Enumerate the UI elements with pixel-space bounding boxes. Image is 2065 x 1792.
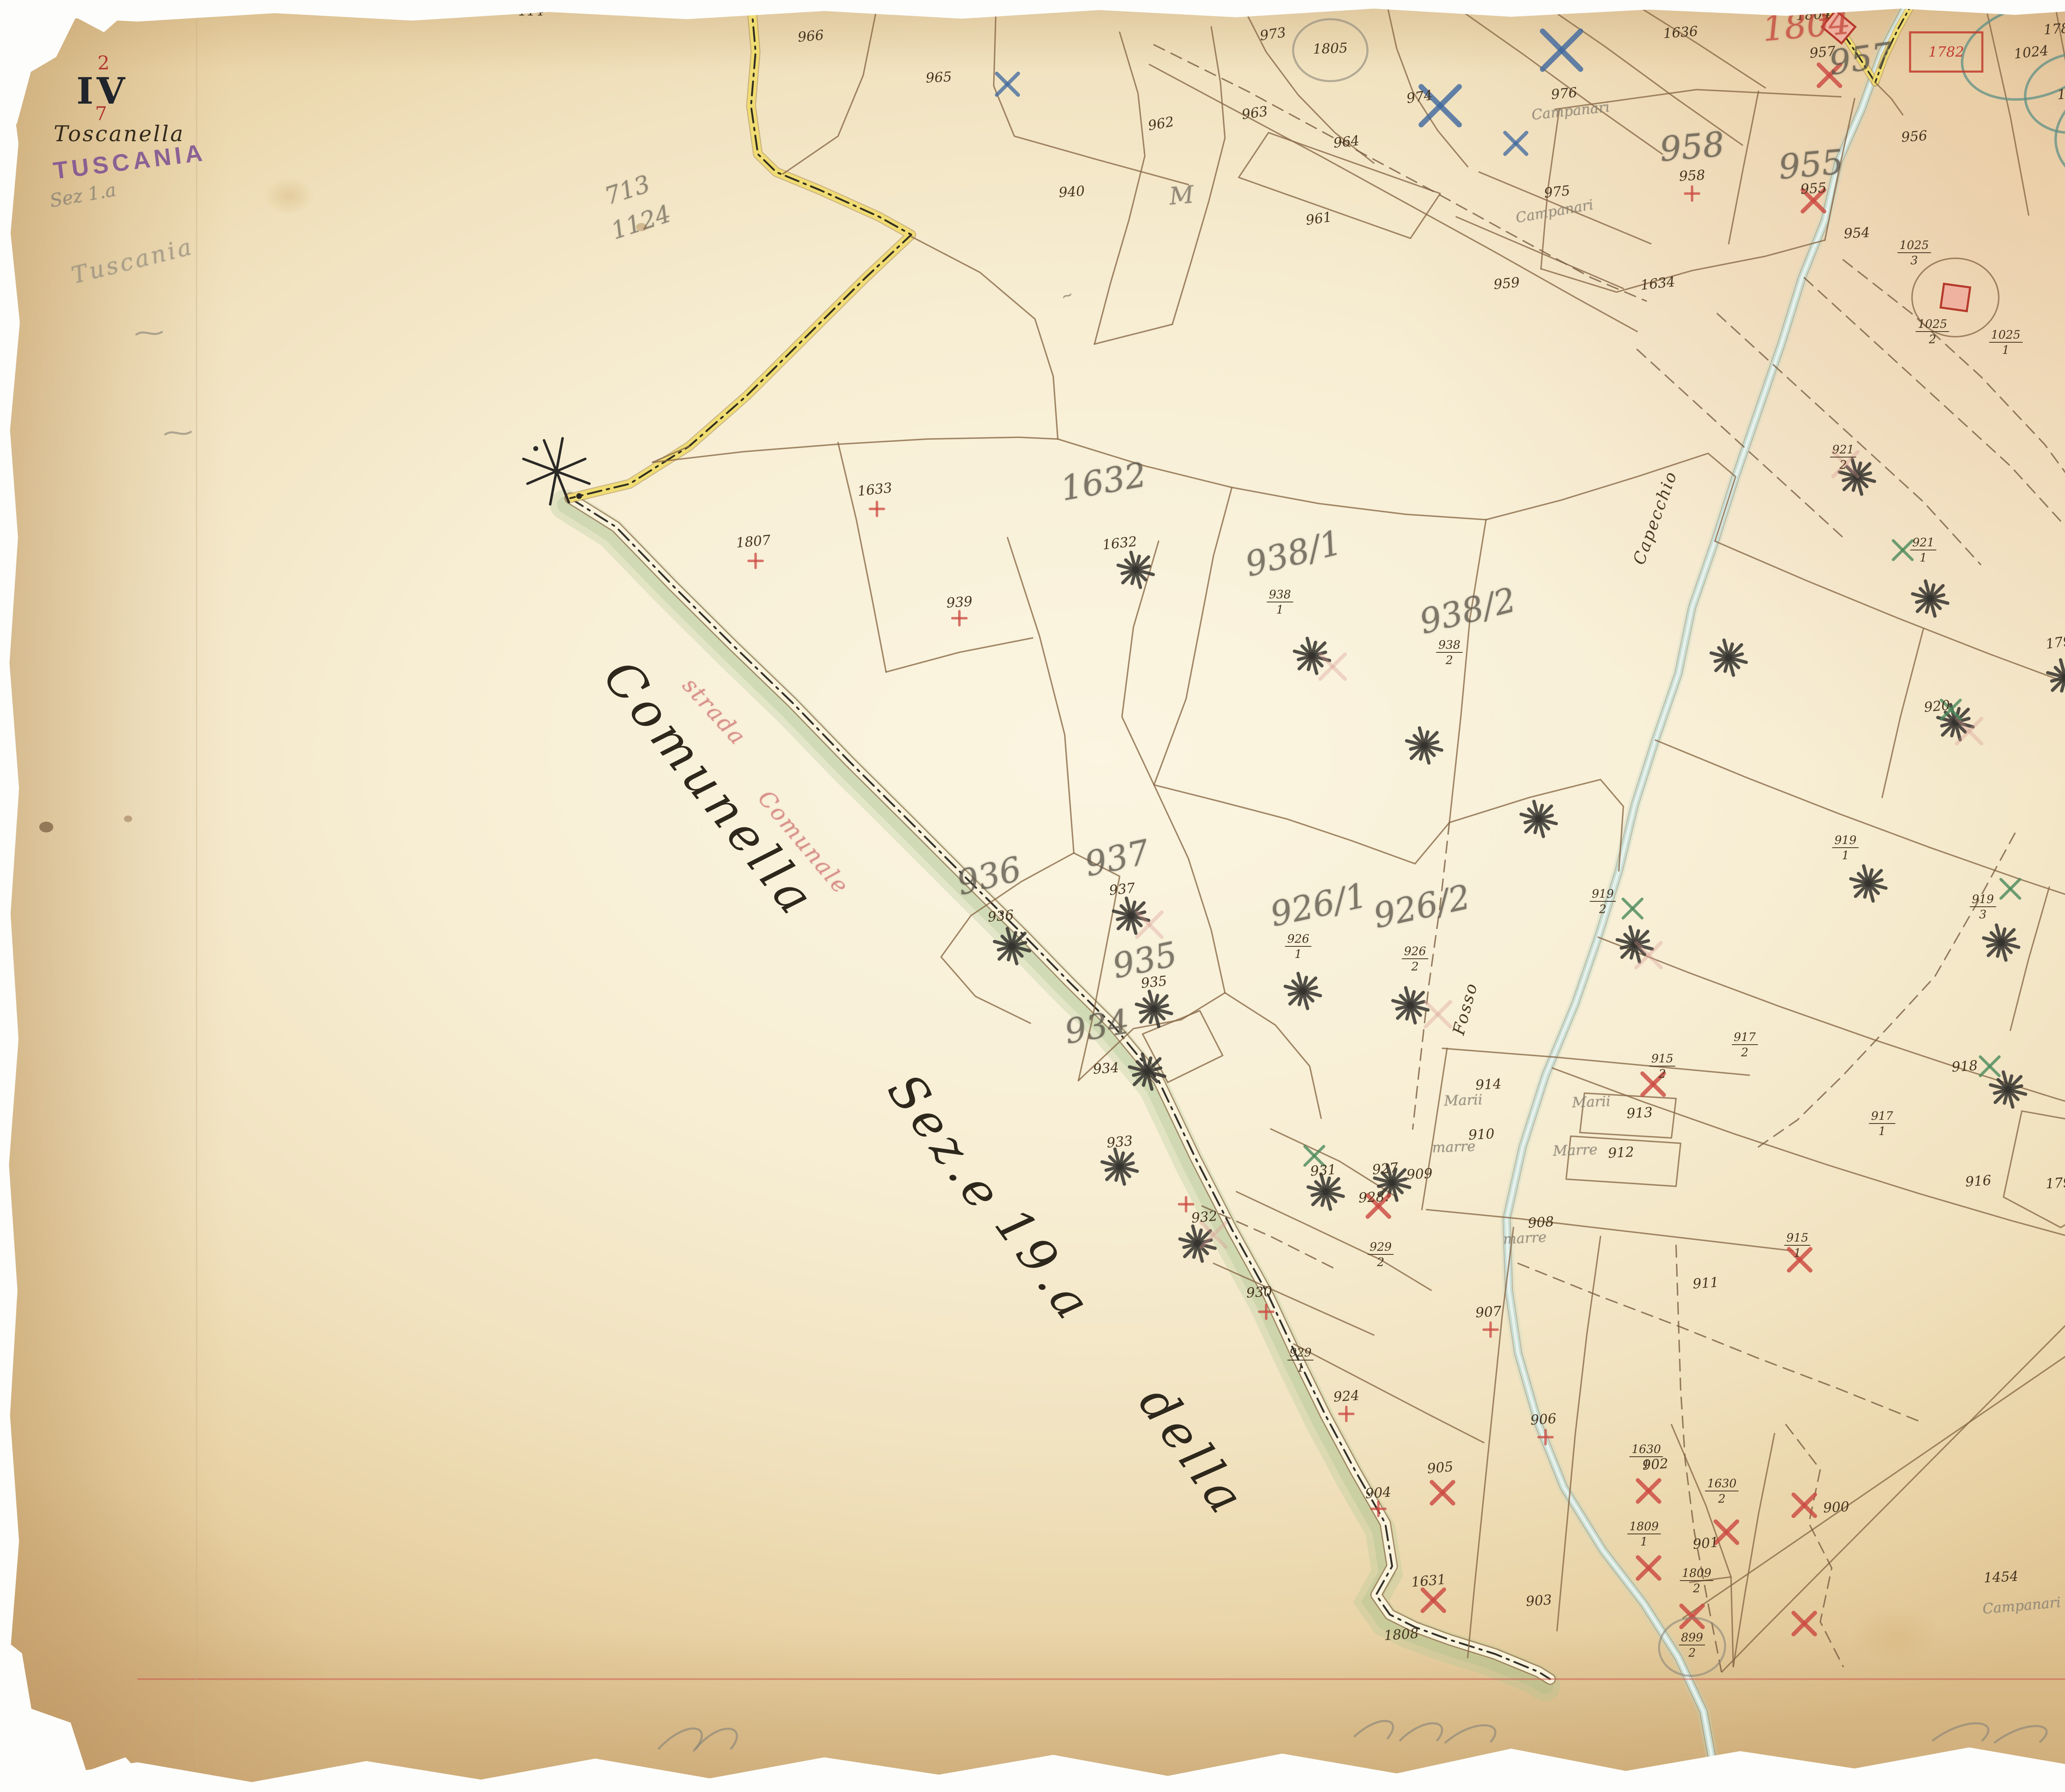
parcel-boundary [2056, 11, 2065, 206]
scanned-map-sheet: 9669659731805974976962963964961975959163… [0, 0, 2065, 1792]
road-surface [570, 498, 1550, 1679]
parcel-boundary [1640, 7, 1766, 88]
tree-symbol [1285, 974, 1320, 1009]
dashed-path [1843, 260, 2065, 914]
tree-symbol [1913, 581, 1948, 616]
parcel-boundary [1987, 14, 2029, 215]
tree-symbol [1137, 991, 1172, 1026]
dashed-path [1717, 314, 1981, 565]
parcel-boundary [2003, 1111, 2065, 1228]
tree-symbol [1407, 728, 1442, 763]
dashed-path [1759, 833, 2015, 1147]
tree-symbol [1308, 1174, 1343, 1209]
parcel-boundary [1213, 1263, 1374, 1335]
tree-symbol [1113, 898, 1149, 933]
parcel-boundary [2010, 887, 2049, 1030]
parcel-boundary [1552, 1068, 2065, 1269]
parcel-boundary [1449, 520, 1486, 823]
pencil-circle-annotation [1293, 19, 1367, 81]
dashed-path [1637, 349, 1843, 538]
parcel-boundary [1094, 32, 1145, 344]
stream-green-verge [1507, 0, 1910, 1774]
parcel-boundary [1598, 937, 2065, 1151]
pencil-flourish [1355, 1721, 1393, 1738]
dashed-path [1518, 1263, 1919, 1421]
dashed-path [1154, 45, 1646, 301]
road-green-verge [565, 505, 1545, 1686]
parcel-boundary [1715, 541, 2065, 721]
parcel-boundary [1825, 99, 1855, 240]
tree-symbol [1991, 1072, 2026, 1107]
parcel-boundary [1154, 488, 1232, 785]
parcel-boundary [911, 237, 1058, 439]
yellow-road-centerline [570, 0, 911, 498]
dashed-path [1786, 1425, 1843, 1666]
teal-circle-annotation [1951, 0, 2065, 114]
tree-symbol [1118, 552, 1153, 588]
parcel-boundary [1875, 83, 1903, 115]
parcel-boundary [1225, 993, 1321, 1118]
road-casing [570, 498, 1550, 1679]
parcel-boundary [1486, 453, 1735, 541]
yellow-road-casing [570, 0, 911, 498]
parcel-boundary [1239, 133, 1440, 238]
road-centerline [570, 498, 1550, 1679]
parcel-boundary [1422, 1048, 1447, 1210]
parcel-boundary [1566, 1136, 1680, 1187]
pencil-squiggle [136, 332, 162, 334]
pencil-flourish [1933, 1723, 1988, 1740]
tree-symbol [1393, 988, 1428, 1023]
tree-symbol [1984, 925, 2019, 960]
parcel-boundary [1882, 629, 1923, 797]
parcel-boundary [1243, 7, 1374, 163]
parcel-boundary [1548, 7, 1742, 145]
parcel-boundary [1154, 785, 1449, 864]
parcel-boundary [1729, 91, 1759, 244]
pencil-flourish [1995, 1726, 2047, 1742]
parcel-boundary [1555, 90, 1841, 109]
yellow-road-surface [570, 0, 911, 498]
parcel-boundary [1541, 109, 1559, 269]
parcel-boundary [1690, 1577, 1731, 1582]
parcel-boundary [1541, 240, 1825, 292]
parcel-boundary [994, 7, 1188, 185]
stream-bank [1507, 0, 1910, 1774]
pencil-flourish [1445, 1725, 1495, 1742]
dashed-path [1413, 823, 1450, 1129]
stream-water-core [1507, 0, 1910, 1774]
parcel-boundary [1058, 439, 1486, 519]
parcel-boundary [1733, 1434, 1775, 1666]
parcel-boundary [1479, 172, 1651, 244]
building-symbol [1941, 284, 1970, 311]
parcel-boundary [1173, 27, 1225, 324]
parcel-boundary [1007, 538, 1074, 853]
tree-symbol [1851, 866, 1886, 901]
map-linework [0, 0, 2065, 1792]
parcel-boundary [783, 7, 877, 174]
stream-water [1507, 0, 1910, 1774]
parcel-boundary [886, 638, 1033, 672]
tree-symbol [1521, 801, 1556, 837]
parcel-boundary [838, 443, 886, 672]
parcel-boundary [1557, 1237, 1600, 1631]
tree-symbol [1102, 1149, 1137, 1184]
parcel-boundary [1427, 1210, 1793, 1251]
pencil-flourish [1400, 1723, 1442, 1740]
parcel-boundary [1683, 1269, 2065, 1618]
pencil-squiggle [165, 432, 191, 434]
parcel-boundary [1580, 1093, 1676, 1138]
parcel-boundary [653, 437, 1058, 462]
parcel-boundary [1154, 785, 1225, 993]
pencil-flourish [659, 1728, 702, 1749]
parcel-boundary [1443, 1048, 1749, 1075]
parcel-boundary [1456, 7, 1662, 154]
road-green-verge [565, 505, 1545, 1686]
parcel-boundary [1671, 1425, 1733, 1666]
tree-symbol [1711, 640, 1746, 675]
parcel-boundary [1094, 325, 1173, 344]
parcel-boundary [1655, 740, 2065, 939]
